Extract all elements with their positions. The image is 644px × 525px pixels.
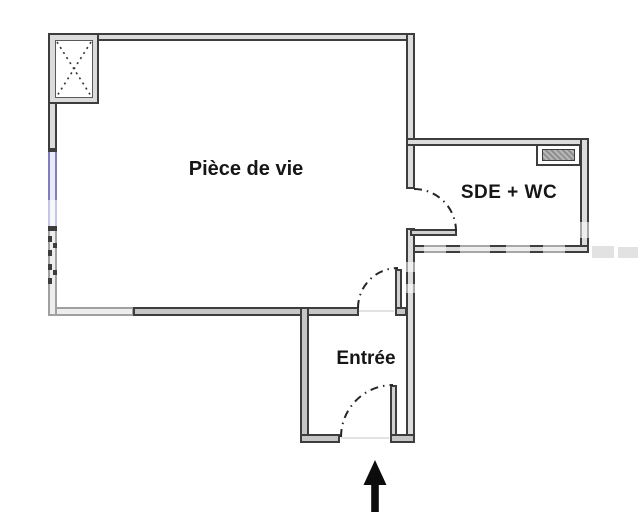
wall-top — [48, 33, 415, 41]
door-leaf-sde — [410, 229, 457, 236]
wall-corridor-bottom-left — [300, 434, 340, 443]
wall-corridor-right — [406, 228, 415, 443]
watermark-patch — [506, 244, 530, 255]
door-leaf-entrance — [390, 385, 397, 436]
door-arc-entrance — [341, 385, 393, 437]
watermark-patch — [460, 244, 490, 255]
wall-tick — [53, 270, 57, 275]
window-cap-bottom — [48, 226, 57, 231]
room-label-piece-de-vie: Pièce de vie — [189, 158, 304, 181]
watermark-patch — [406, 284, 415, 293]
door-arc-sde — [414, 189, 456, 231]
wall-bottom-living-light — [48, 307, 134, 316]
wall-bottom-living — [133, 307, 359, 316]
watermark-patch — [543, 244, 565, 255]
watermark-blob — [618, 247, 638, 258]
wall-tick — [48, 264, 52, 270]
watermark-patch — [424, 244, 446, 255]
shaft-box-inner — [55, 40, 93, 98]
door-leaf-living-corridor — [395, 269, 402, 309]
wall-right-living — [406, 33, 415, 189]
wall-corridor-left — [300, 307, 309, 443]
wall-tick — [48, 236, 52, 242]
room-label-entree: Entrée — [336, 348, 395, 370]
door-arc-living-corridor — [358, 268, 398, 308]
window-fade — [48, 200, 57, 228]
entrance-arrow-icon — [364, 460, 387, 512]
floor-plan: Pièce de vie SDE + WC Entrée — [0, 0, 644, 525]
watermark-patch — [406, 262, 415, 272]
wall-tick — [48, 250, 52, 256]
room-label-sde-wc: SDE + WC — [461, 182, 557, 204]
window-cap-top — [48, 148, 57, 152]
watermark-blob — [592, 246, 614, 258]
wall-tick — [48, 278, 52, 284]
watermark-patch — [580, 222, 589, 238]
wall-tick — [53, 243, 57, 248]
duct-hatch-icon — [542, 149, 575, 161]
